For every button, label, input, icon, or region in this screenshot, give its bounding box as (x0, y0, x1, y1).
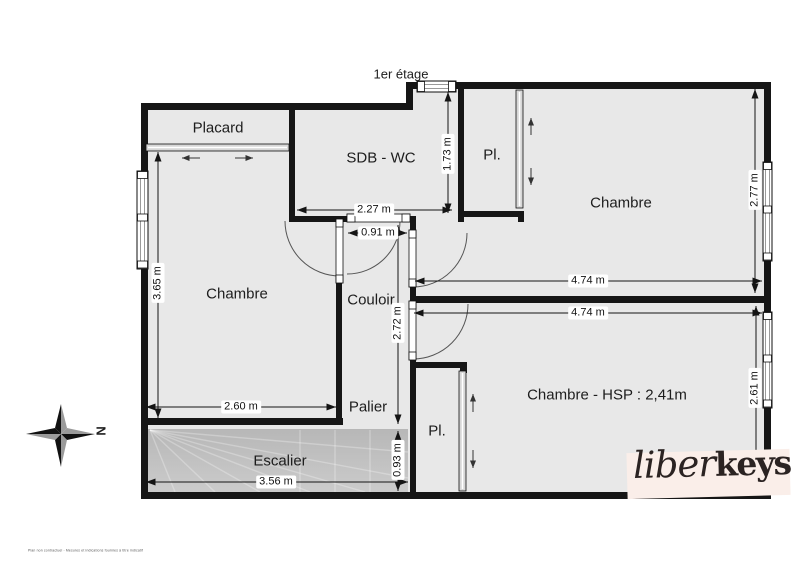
room-label-couloir: Couloir (347, 292, 395, 309)
dim-label-sdb-width: 2.27 m (354, 204, 394, 217)
door-cap (336, 275, 343, 283)
logo-script-text: liber (632, 442, 715, 487)
door-cap (409, 279, 416, 287)
room-label-chambre-left: Chambre (206, 286, 268, 303)
window-mullion (764, 163, 772, 170)
window-mullion (764, 253, 772, 260)
wall-couloir-east-c (410, 358, 416, 499)
wall-chambre-left-south (141, 418, 343, 425)
door-cap (402, 214, 410, 222)
compass-rose-icon (26, 404, 95, 467)
door-leaf (336, 219, 343, 283)
window-mullion (764, 355, 772, 362)
door-cap (409, 352, 416, 360)
wall-pl-top-south (458, 211, 524, 217)
room-label-pl-bottom: Pl. (428, 423, 446, 440)
wall-pl-bottom-north (410, 362, 467, 368)
wall-sdb-west (289, 103, 295, 222)
window-right-bottom (763, 312, 772, 408)
window-mullion (138, 172, 148, 179)
dim-label-chambre-top-width: 4.74 m (568, 275, 608, 288)
wall-outer-right (764, 82, 771, 499)
door-cap (409, 301, 416, 309)
dim-label-sdb-height: 1.73 m (442, 134, 455, 174)
compass-point (26, 428, 61, 434)
footer-disclaimer: Plan non contractuel - Mesures et indica… (28, 548, 143, 552)
dim-label-chambre-left-height: 3.65 m (152, 263, 165, 303)
dim-label-couloir-height: 2.72 m (392, 303, 405, 343)
compass-point (26, 434, 61, 440)
window-mullion (764, 206, 772, 213)
window-left-wall (137, 171, 148, 269)
window-mullion (418, 82, 425, 92)
wall-pl-top-cap (518, 211, 524, 222)
floor-title: 1er étage (374, 67, 429, 82)
window-mullion (138, 261, 148, 268)
window-mullion (449, 82, 456, 92)
wall-couloir-west (336, 283, 342, 425)
room-label-placard: Placard (193, 120, 244, 137)
dim-label-chambre-left-width: 2.60 m (221, 401, 261, 414)
room-label-palier: Palier (349, 399, 387, 416)
door-leaf (409, 230, 416, 287)
door-leaf (409, 301, 416, 360)
door-cap (336, 219, 343, 227)
room-label-escalier: Escalier (253, 453, 306, 470)
dim-label-couloir-door: 0.91 m (358, 227, 398, 240)
wall-sdb-east (458, 82, 464, 222)
window-top-bump (417, 81, 456, 92)
window-mullion (138, 214, 148, 221)
floor-plan-page: 1er étage Placard SDB - WC Pl. Chambre C… (0, 0, 800, 566)
door-cap (409, 230, 416, 238)
room-label-pl-top: Pl. (483, 147, 501, 164)
dim-label-chambre-bottom-height: 2.61 m (749, 368, 762, 408)
room-label-sdb-wc: SDB - WC (346, 150, 415, 167)
wall-chambres-divider (410, 296, 768, 303)
room-label-chambre-top-right: Chambre (590, 195, 652, 212)
wall-outer-top-left (141, 103, 413, 110)
wall-outer-left (141, 103, 148, 499)
window-mullion (764, 313, 772, 320)
dim-label-chambre-top-height: 2.77 m (749, 170, 762, 210)
dim-label-chambre-bottom-width: 4.74 m (568, 307, 608, 320)
logo-bold-text: keys (714, 443, 791, 484)
window-right-top (763, 162, 772, 261)
room-label-chambre-bottom-right: Chambre - HSP : 2,41m (527, 387, 687, 404)
compass-north-label: N (94, 426, 109, 435)
dim-label-escalier-height: 0.93 m (392, 440, 405, 480)
dim-label-escalier-width: 3.56 m (256, 476, 296, 489)
window-mullion (764, 400, 772, 407)
liberkeys-logo: liberkeys (632, 440, 791, 487)
